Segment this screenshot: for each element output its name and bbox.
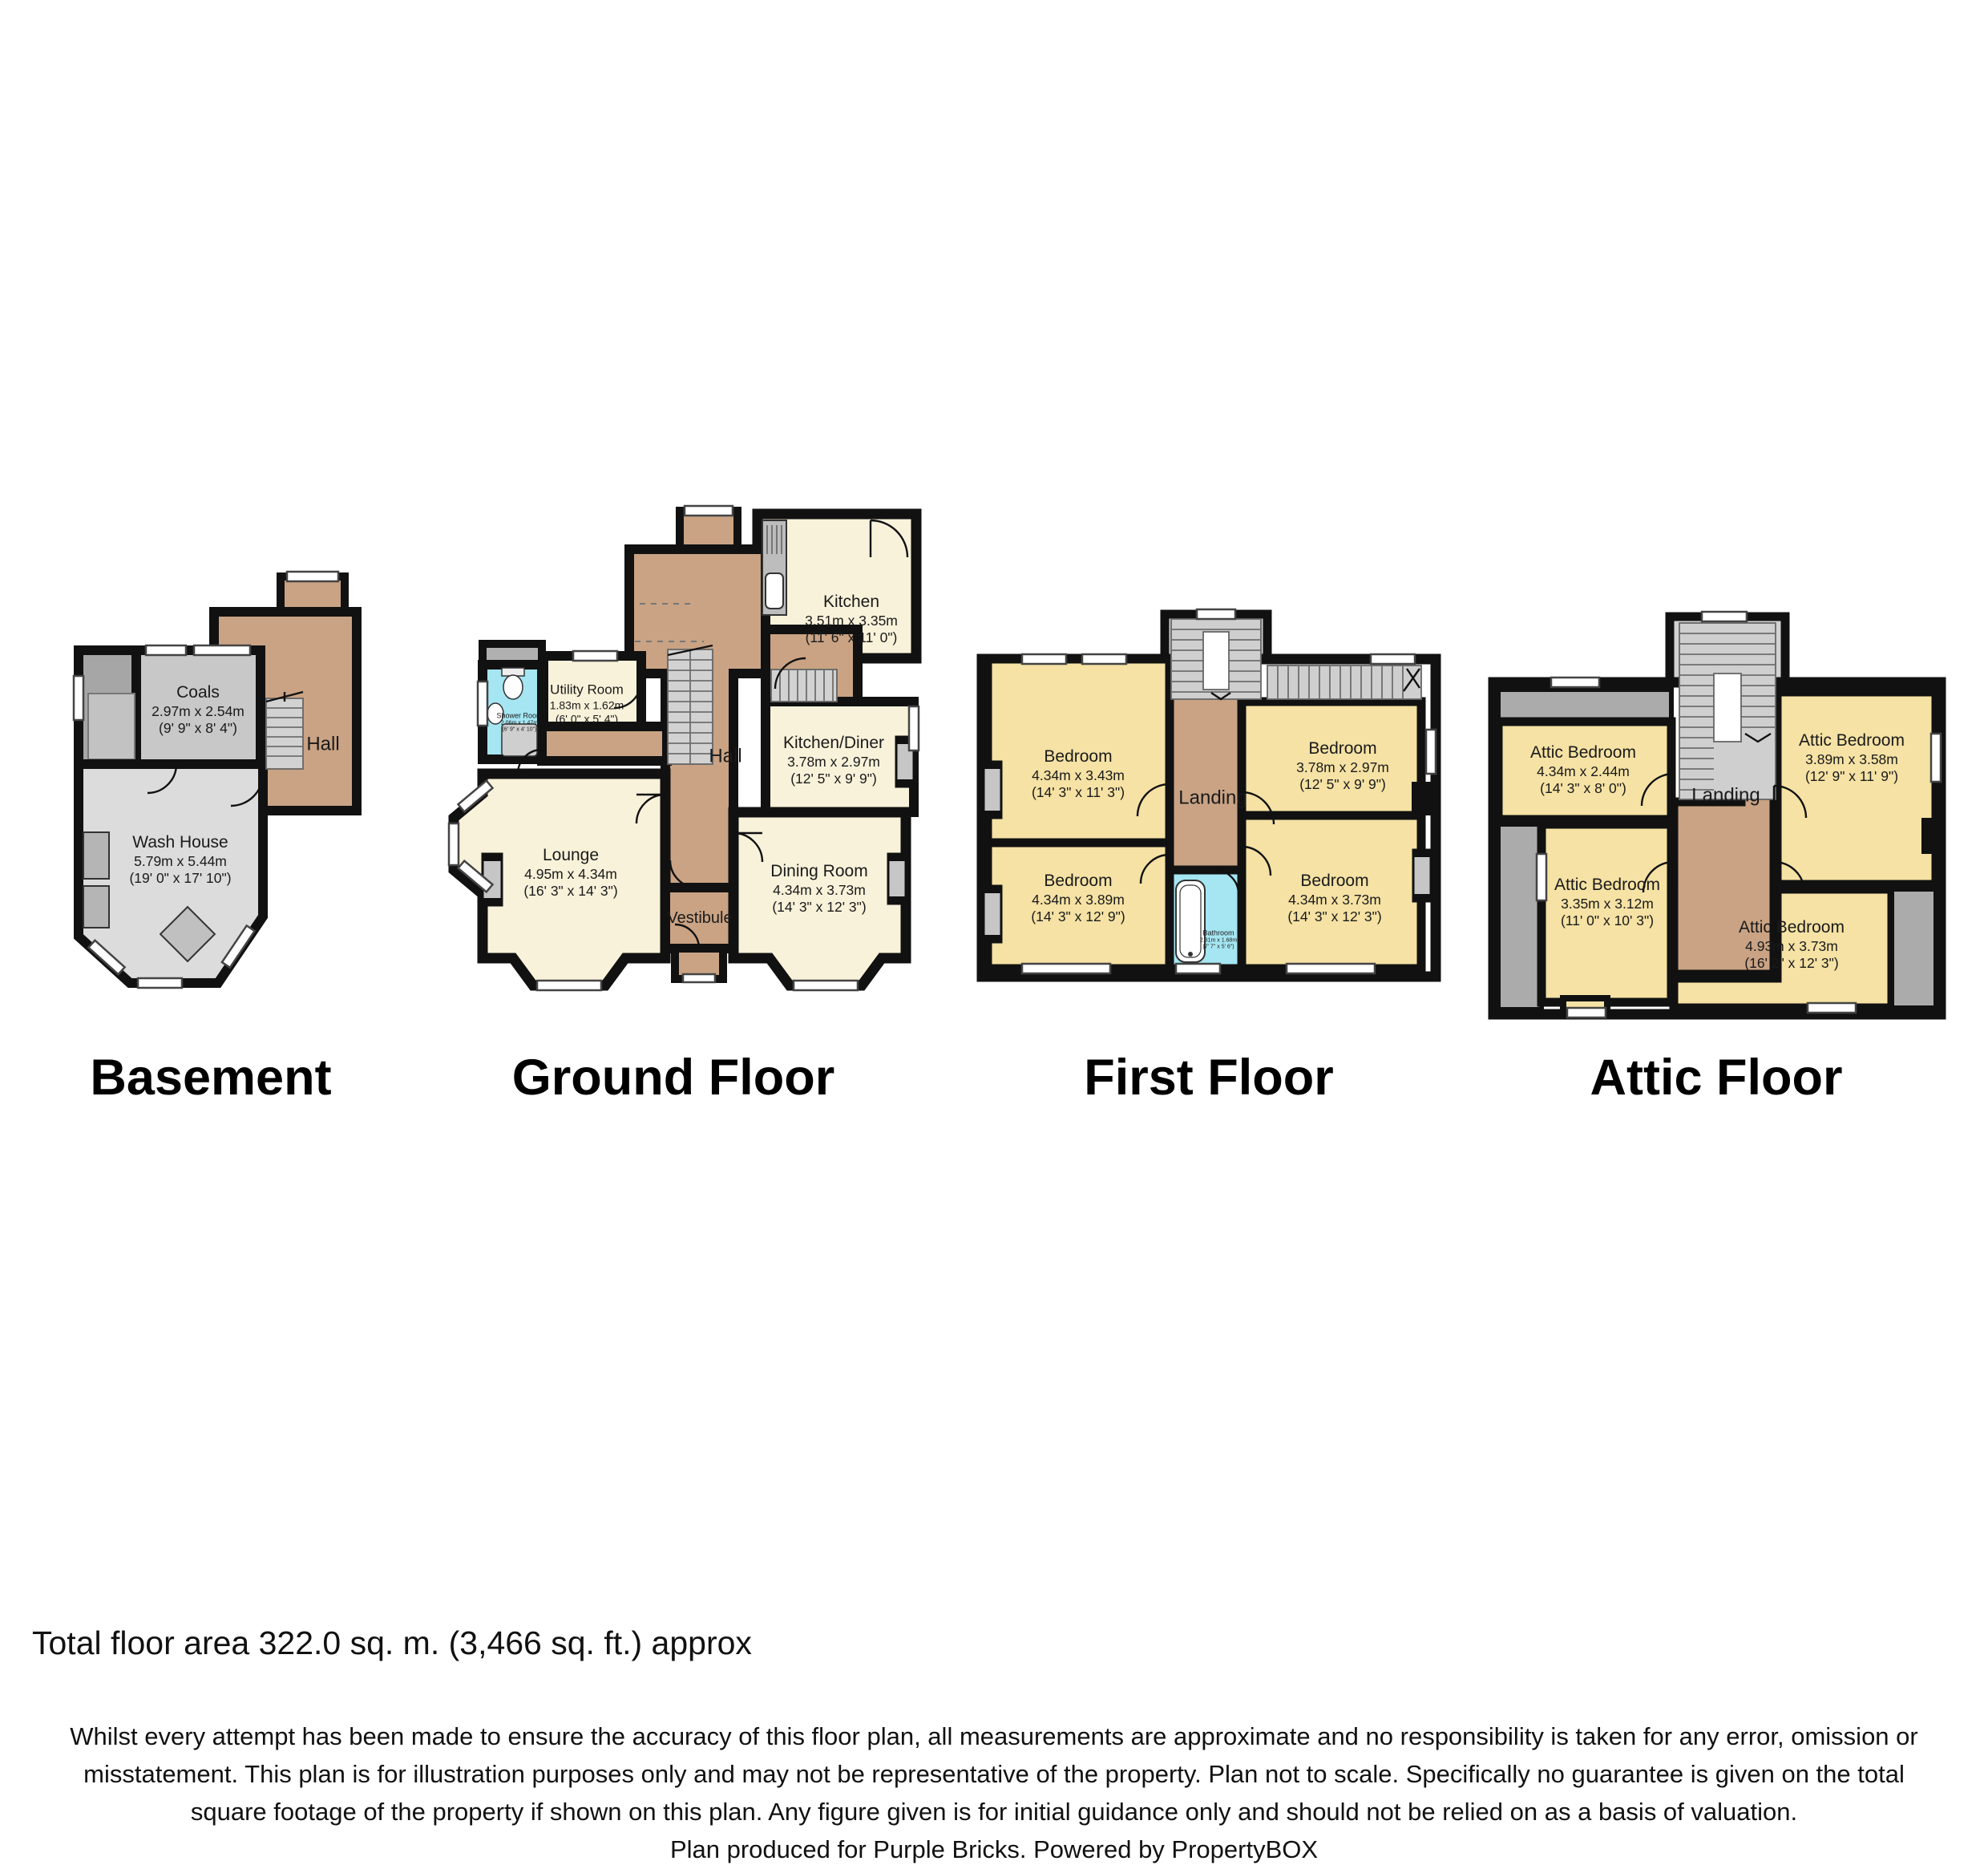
window — [478, 682, 487, 726]
ground-mini-staircase — [771, 670, 837, 702]
fireplace — [984, 886, 1001, 942]
disclaimer: Whilst every attempt has been made to en… — [32, 1717, 1956, 1865]
title-first-floor: First Floor — [1084, 1049, 1334, 1106]
window — [74, 676, 83, 720]
chimney-breast — [1412, 782, 1432, 815]
window — [449, 823, 459, 865]
ground-left-corridor — [542, 726, 667, 761]
label-bathroom: Bathroom 2.31m x 1.68m (7' 7" x 5' 6") — [1200, 928, 1237, 950]
label-first-landing: Landing — [1178, 786, 1247, 809]
wash-house-appliance — [83, 886, 109, 928]
window — [1702, 612, 1747, 621]
window — [1197, 609, 1235, 619]
label-attic-bedroom-br: Attic Bedroom 4.93m x 3.73m (16' 2" x 12… — [1739, 917, 1845, 972]
label-kitchen-diner: Kitchen/Diner 3.78m x 2.97m (12' 5" x 9'… — [783, 733, 884, 787]
label-lounge: Lounge 4.95m x 4.34m (16' 3" x 14' 3") — [523, 845, 617, 900]
attic-access-staircase — [1267, 665, 1421, 699]
label-basement-hall: Hall — [306, 732, 339, 755]
chimney-breast — [1921, 818, 1941, 854]
title-attic-floor: Attic Floor — [1590, 1049, 1843, 1106]
toilet-icon — [502, 668, 524, 699]
label-wash-house: Wash House 5.79m x 5.44m (19' 0" x 17' 1… — [129, 832, 231, 887]
disclaimer-line: Whilst every attempt has been made to en… — [32, 1717, 1956, 1755]
window — [1551, 678, 1599, 687]
window — [1808, 1003, 1856, 1013]
window — [1022, 964, 1110, 973]
ground-staircase — [668, 645, 713, 764]
first-staircase — [1171, 619, 1261, 699]
label-attic-bedroom-tl: Attic Bedroom 4.34m x 2.44m (14' 3" x 8'… — [1530, 742, 1636, 797]
window — [1371, 654, 1415, 664]
label-bedroom-tl: Bedroom 4.34m x 3.43m (14' 3" x 11' 3") — [1032, 746, 1125, 801]
label-dining-room: Dining Room 4.34m x 3.73m (14' 3" x 12' … — [770, 861, 867, 916]
window — [138, 978, 182, 988]
window — [1176, 964, 1220, 973]
label-kitchen: Kitchen 3.51m x 3.35m (11' 6" x 11' 0") — [805, 592, 898, 646]
label-attic-bedroom-tr: Attic Bedroom 3.89m x 3.58m (12' 9" x 11… — [1799, 730, 1905, 785]
window — [573, 651, 617, 661]
basement-staircase — [266, 692, 303, 769]
window — [1426, 730, 1436, 774]
window — [537, 981, 601, 990]
attic-floorplan — [1487, 613, 1948, 1022]
basement-storage-shelf — [88, 694, 135, 759]
window — [146, 645, 186, 655]
label-utility: Utility Room 1.83m x 1.62m (6' 0" x 5' 4… — [550, 682, 624, 726]
wash-house-appliance — [83, 832, 109, 879]
attic-staircase — [1679, 623, 1776, 799]
window — [909, 706, 919, 750]
disclaimer-line: misstatement. This plan is for illustrat… — [32, 1755, 1956, 1793]
label-shower-room: Shower Room 2.06m x 1.47m (6' 9" x 4' 10… — [496, 711, 542, 733]
window — [1537, 854, 1546, 900]
door-opening — [683, 974, 715, 982]
window — [1082, 654, 1126, 664]
attic-eaves-top-left — [1498, 690, 1671, 722]
window — [287, 572, 338, 581]
window — [1931, 734, 1941, 782]
fireplace — [888, 854, 906, 904]
label-bedroom-tr: Bedroom 3.78m x 2.97m (12' 5" x 9' 9") — [1296, 738, 1389, 793]
label-vestibule: Vestibule — [667, 908, 732, 928]
label-attic-landing: Landing — [1691, 783, 1760, 807]
window — [1287, 964, 1375, 973]
window — [794, 981, 858, 990]
window — [194, 645, 250, 655]
fireplace — [1413, 850, 1431, 901]
disclaimer-line: square footage of the property if shown … — [32, 1793, 1956, 1831]
label-ground-hall: Hall — [709, 744, 741, 767]
floorplan-page: Coals 2.97m x 2.54m (9' 9" x 8' 4") Hall… — [0, 0, 1988, 1865]
disclaimer-line: Plan produced for Purple Bricks. Powered… — [32, 1831, 1956, 1865]
attic-eaves-right — [1892, 889, 1936, 1008]
window — [1567, 1008, 1606, 1017]
total-floor-area: Total floor area 322.0 sq. m. (3,466 sq.… — [32, 1624, 752, 1662]
window — [1022, 654, 1066, 664]
fireplace — [984, 762, 1001, 818]
label-attic-bedroom-bl: Attic Bedroom 3.35m x 3.12m (11' 0" x 10… — [1554, 875, 1660, 929]
basement-floorplan — [56, 572, 377, 1025]
room-attic-bedroom-tr — [1777, 692, 1936, 884]
title-basement: Basement — [90, 1049, 331, 1106]
label-coals: Coals 2.97m x 2.54m (9' 9" x 8' 4") — [152, 682, 244, 737]
label-bedroom-br: Bedroom 4.34m x 3.73m (14' 3" x 12' 3") — [1287, 871, 1381, 925]
label-bedroom-bl: Bedroom 4.34m x 3.89m (14' 3" x 12' 9") — [1031, 871, 1125, 925]
attic-eaves-left — [1498, 824, 1542, 1009]
sink-icon — [762, 520, 786, 615]
window — [685, 506, 733, 516]
title-ground-floor: Ground Floor — [512, 1049, 834, 1106]
